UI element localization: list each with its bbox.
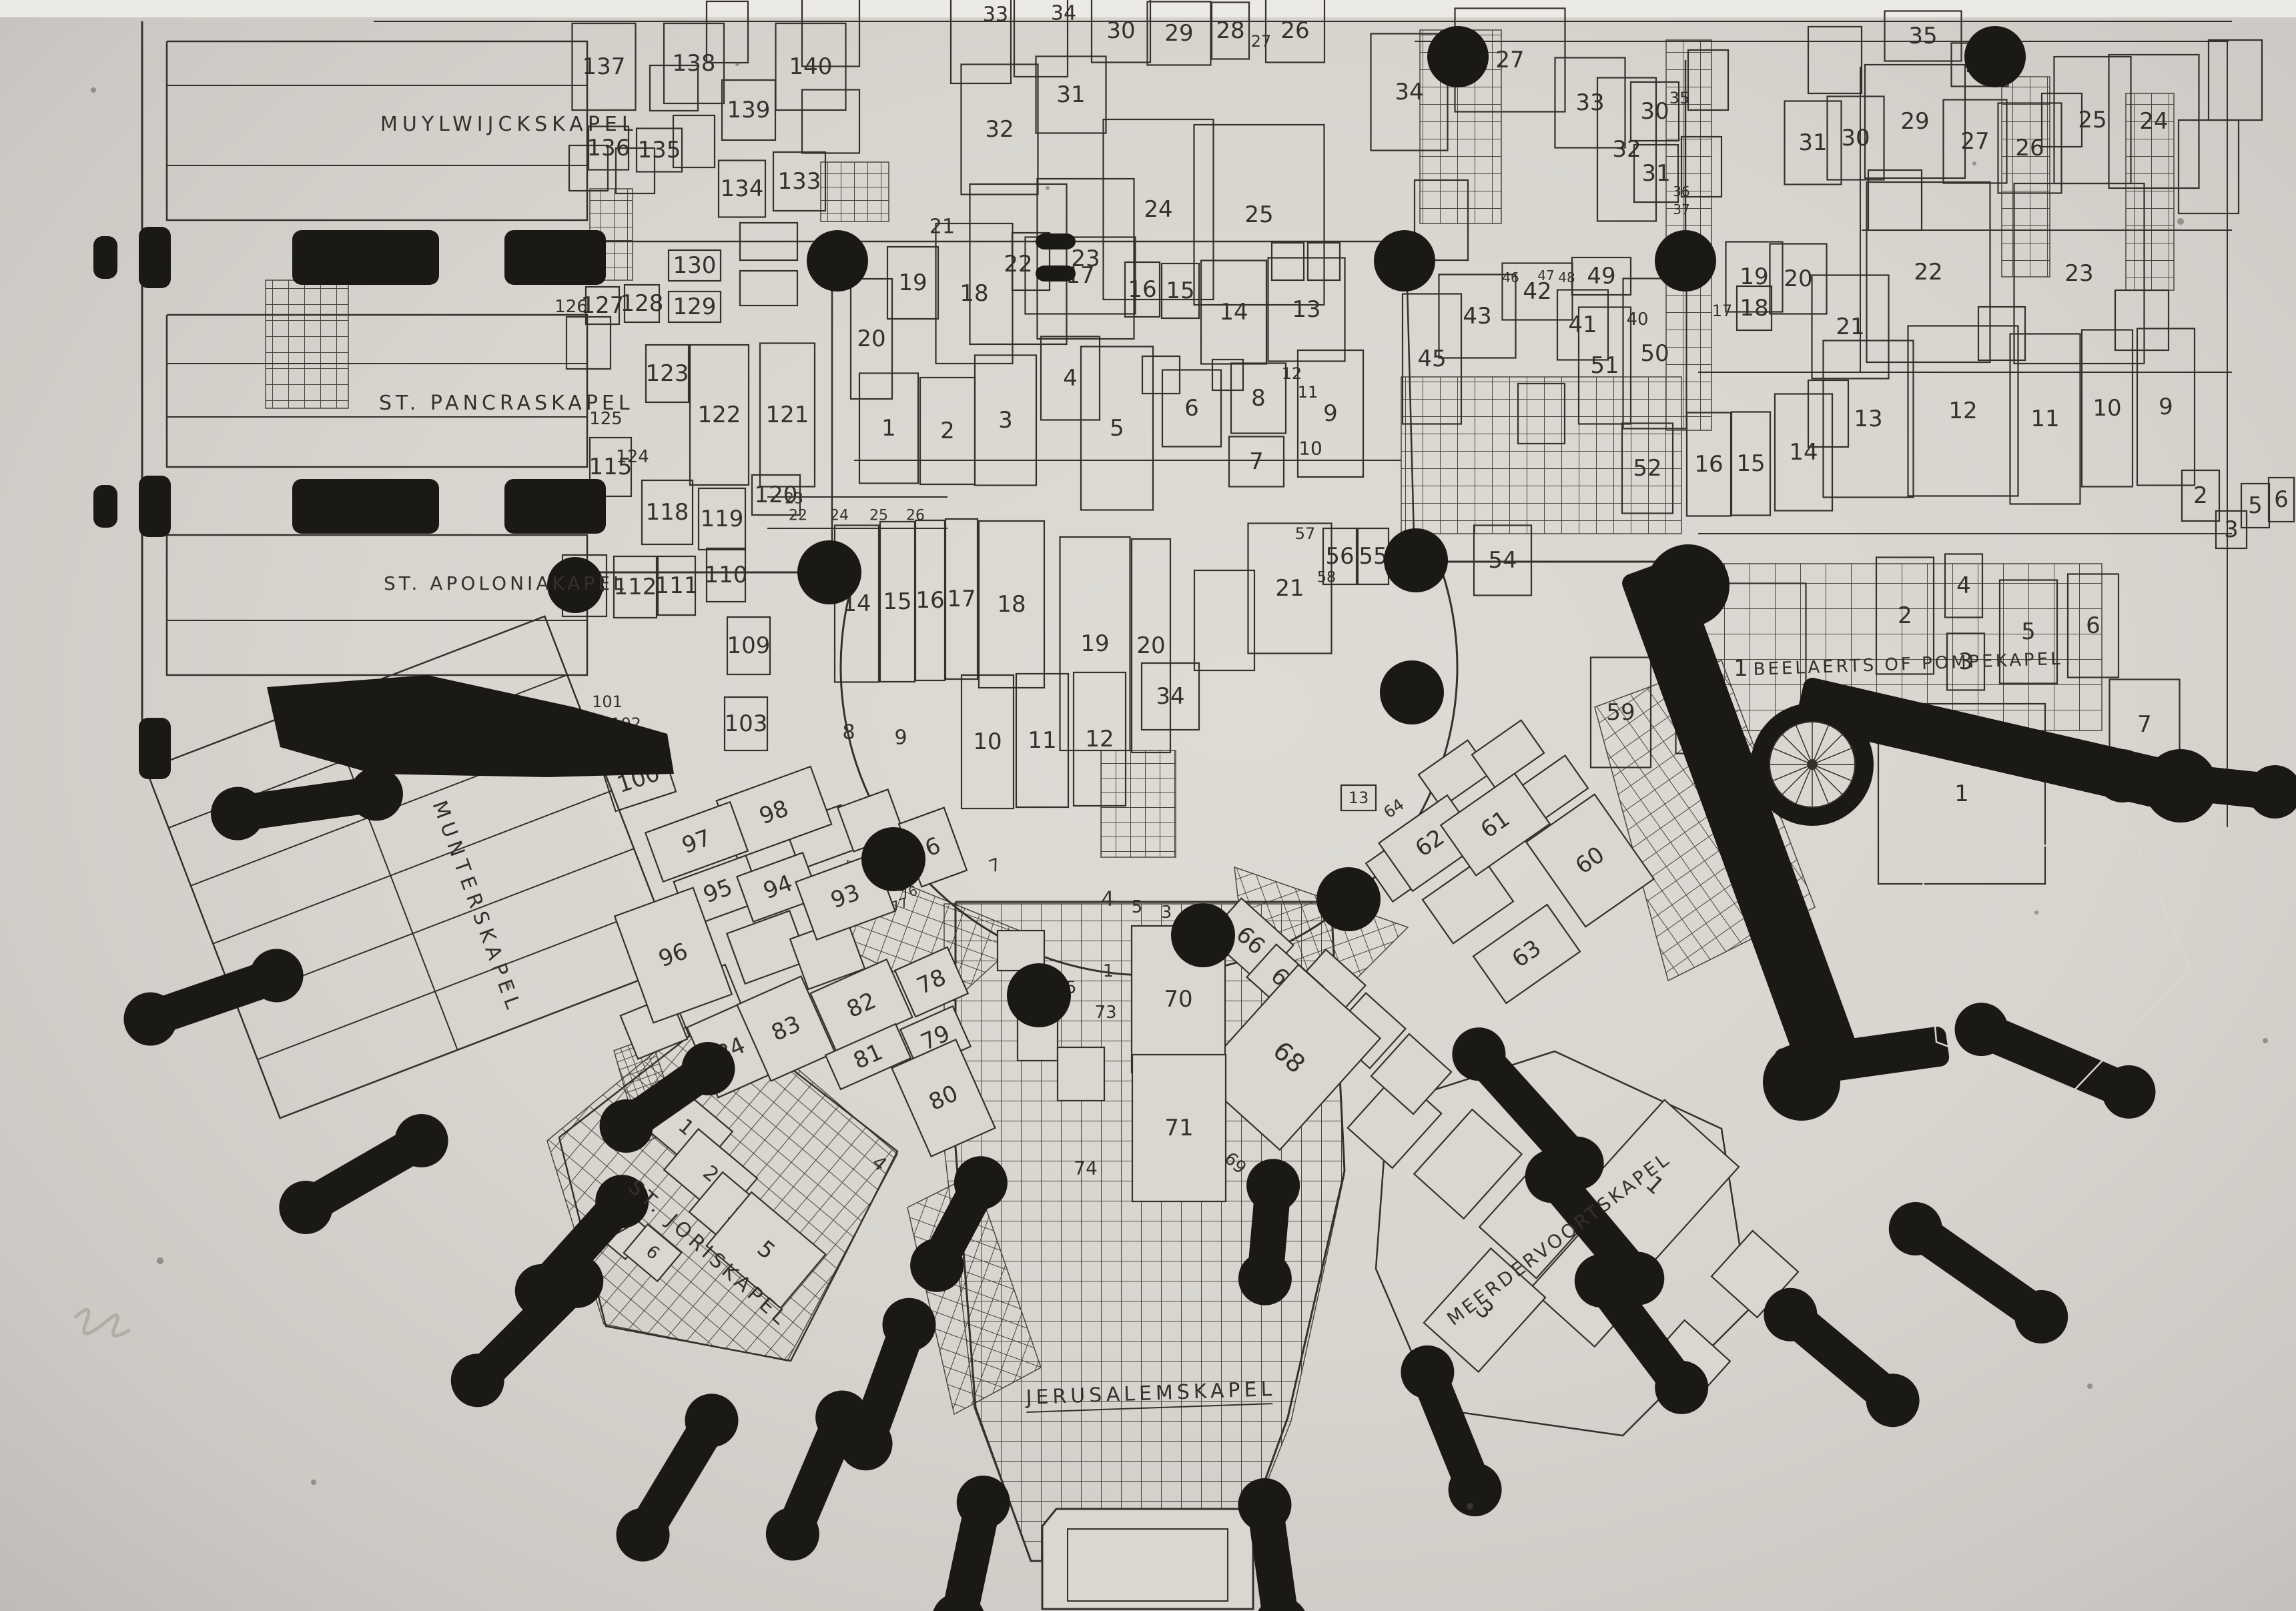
grave-plot-cell bbox=[2179, 120, 2239, 213]
wall-line bbox=[167, 315, 587, 467]
grave-plot: 46 bbox=[1502, 270, 1519, 286]
grave-plot: 133 bbox=[773, 152, 825, 211]
grave-plot: 3 bbox=[1161, 903, 1172, 923]
plot-number-label: 10 bbox=[2092, 395, 2121, 422]
grave-plot: 2 bbox=[920, 378, 975, 484]
grave-plot: 18 bbox=[979, 521, 1044, 688]
grave-plot: 27 bbox=[1944, 100, 2007, 183]
pier-bar bbox=[504, 479, 606, 534]
grave-plot-cell bbox=[1142, 356, 1180, 394]
dust-speck bbox=[2263, 1038, 2268, 1043]
grave-plot: 110 bbox=[705, 548, 748, 602]
plot-number-label: 5 bbox=[1110, 415, 1124, 442]
grave-plot: 47 bbox=[1537, 267, 1554, 284]
dust-speck bbox=[311, 1480, 316, 1485]
plot-number-label: 41 bbox=[1568, 312, 1597, 338]
spiral-staircase bbox=[1751, 703, 1874, 826]
grave-plot: 15 bbox=[1732, 412, 1770, 516]
grave-plot: 118 bbox=[642, 480, 693, 544]
plot-number-label: 21 bbox=[1836, 314, 1864, 340]
grave-plot: 122 bbox=[690, 345, 749, 485]
chapel-label-munterskapel: MUNTERSKAPEL bbox=[427, 798, 526, 1017]
grave-plot: 129 bbox=[669, 292, 721, 322]
plot-number-label: 3 bbox=[2224, 516, 2239, 543]
dust-speck bbox=[2177, 218, 2184, 225]
grave-plot: 101 bbox=[592, 692, 623, 711]
plot-number-label: 27 bbox=[1960, 128, 1989, 155]
plot-number-label: 2 bbox=[940, 418, 955, 444]
grave-plot: 21 bbox=[1248, 524, 1332, 654]
plot-number-label: 129 bbox=[673, 294, 717, 320]
plot-number-label: 27 bbox=[1495, 47, 1524, 73]
grave-plot: 13 bbox=[1268, 258, 1345, 362]
grave-plot-cell bbox=[1272, 243, 1304, 280]
buttress-pier bbox=[927, 1471, 1015, 1611]
grave-plot: 9 bbox=[2137, 329, 2195, 486]
plot-number-label: 59 bbox=[1606, 699, 1635, 726]
scanned-floorplan-photo: 1371381401391361351341331301291281271261… bbox=[0, 0, 2296, 1611]
grave-plot-cell bbox=[1194, 570, 1254, 670]
hatched-floor-area bbox=[266, 280, 348, 408]
plot-number-label: 121 bbox=[766, 402, 809, 428]
plot-number-label: 22 bbox=[1914, 259, 1942, 286]
plot-number-label: 10 bbox=[1298, 438, 1322, 460]
plot-number-label: 14 bbox=[1219, 299, 1248, 326]
grave-plot: 11 bbox=[2010, 334, 2080, 504]
pier-bar bbox=[93, 485, 117, 528]
grave-plot-cell bbox=[1058, 1047, 1104, 1101]
grave-plot: 1 bbox=[1103, 961, 1114, 981]
dust-speck bbox=[506, 983, 511, 989]
plot-number-label: 34 bbox=[1156, 683, 1184, 710]
grave-plot: 8 bbox=[1231, 364, 1286, 434]
grave-plot: 55 bbox=[1358, 528, 1389, 584]
grave-plot: 126 bbox=[554, 297, 588, 317]
plot-number-label: 6 bbox=[2274, 486, 2289, 513]
plot-number-label: 20 bbox=[1136, 632, 1165, 659]
dust-speck bbox=[2034, 911, 2038, 915]
plot-number-label: 1 bbox=[1954, 780, 1969, 807]
plot-number-label: 71 bbox=[1164, 1115, 1193, 1141]
plot-number-label: 13 bbox=[1349, 788, 1369, 807]
buttress-pier bbox=[1393, 1337, 1509, 1524]
grave-plot: 3 bbox=[975, 356, 1036, 486]
plot-number-label: 3 bbox=[1161, 903, 1172, 923]
plot-number-label: 11 bbox=[1298, 383, 1318, 402]
grave-plot: 18 bbox=[936, 223, 1013, 364]
plot-number-label: 123 bbox=[646, 360, 689, 387]
dust-speck bbox=[91, 87, 96, 93]
grave-plot: 30 bbox=[1828, 97, 1884, 180]
hatched-floor-area bbox=[2002, 77, 2050, 277]
plot-number-label: 47 bbox=[1537, 267, 1554, 284]
plot-number-label: 1 bbox=[1103, 961, 1114, 981]
plot-number-label: 56 bbox=[1325, 543, 1354, 570]
plot-number-label: 32 bbox=[985, 116, 1014, 143]
grave-plot: 24 bbox=[830, 508, 849, 524]
pier-bar bbox=[139, 227, 171, 288]
plot-number-label: 6 bbox=[2086, 612, 2100, 639]
grave-plot: 11 bbox=[1298, 383, 1318, 402]
plot-number-label: 7 bbox=[986, 855, 1004, 877]
plot-number-label: 111 bbox=[655, 572, 699, 599]
grave-plot: 9 bbox=[894, 726, 907, 750]
plot-number-label: 55 bbox=[1359, 543, 1387, 570]
wall-line bbox=[167, 535, 587, 675]
plot-number-label: 34 bbox=[1051, 2, 1076, 25]
plot-number-label: 12 bbox=[1282, 364, 1302, 383]
grave-plot: 12 bbox=[1282, 364, 1302, 383]
grave-plot: 18 bbox=[1737, 286, 1772, 330]
plot-number-label: 20 bbox=[857, 326, 885, 352]
plot-number-label: 24 bbox=[1144, 196, 1172, 223]
plot-number-label: 32 bbox=[1612, 136, 1641, 163]
plot-number-label: 23 bbox=[785, 491, 803, 508]
dust-speck bbox=[1046, 186, 1050, 190]
plot-number-label: 128 bbox=[621, 290, 664, 317]
plot-number-label: 27 bbox=[1251, 32, 1272, 51]
plot-number-label: 7 bbox=[1249, 448, 1264, 475]
plot-number-label: 30 bbox=[1106, 17, 1135, 44]
column-pillar bbox=[1316, 867, 1381, 931]
plot-number-label: 31 bbox=[1641, 160, 1670, 187]
plot-number-label: 9 bbox=[1323, 400, 1338, 427]
pier-mass bbox=[2144, 749, 2217, 823]
plot-number-label: 54 bbox=[1488, 547, 1517, 574]
grave-plot: 20 bbox=[851, 279, 892, 399]
grave-plot: 5 bbox=[1132, 897, 1143, 917]
dust-speck bbox=[157, 1257, 163, 1264]
plot-number-label: 26 bbox=[2015, 135, 2044, 161]
grave-plot: 22 bbox=[970, 184, 1067, 344]
plot-number-label: 43 bbox=[1463, 303, 1491, 330]
grave-plot: 137 bbox=[572, 23, 636, 110]
grave-plot: 3 bbox=[2216, 511, 2247, 548]
grave-plot: 20 bbox=[1132, 539, 1170, 752]
dust-speck bbox=[2087, 1384, 2092, 1389]
column-pillar bbox=[1374, 230, 1435, 292]
plot-number-label: 130 bbox=[673, 252, 717, 279]
grave-plot: 40 bbox=[1626, 310, 1648, 330]
plot-number-label: 28 bbox=[1216, 17, 1244, 44]
plot-number-label: 33 bbox=[983, 3, 1008, 27]
plot-number-label: 18 bbox=[1740, 295, 1768, 322]
plot-number-label: 20 bbox=[1784, 265, 1812, 292]
plot-number-label: 36 bbox=[1673, 183, 1689, 199]
plot-number-label: 17 bbox=[1712, 302, 1733, 320]
pencil-mark bbox=[73, 1301, 130, 1344]
plot-number-label: 16 bbox=[915, 587, 944, 614]
grave-plot: 111 bbox=[655, 556, 699, 615]
column-pillar bbox=[1171, 903, 1235, 967]
grave-plot: 121 bbox=[760, 344, 815, 487]
plot-number-label: 30 bbox=[1640, 98, 1669, 125]
plot-number-label: 115 bbox=[589, 454, 633, 480]
plot-number-label: 73 bbox=[1094, 1003, 1116, 1023]
grave-plot-cell bbox=[802, 90, 859, 153]
grave-plot: 25 bbox=[2054, 57, 2131, 183]
pier-bar bbox=[139, 476, 171, 537]
grave-plot: 57 bbox=[1295, 524, 1316, 543]
plot-number-label: 64 bbox=[1380, 795, 1407, 822]
buttress-pier bbox=[831, 1290, 943, 1478]
plot-number-label: 17 bbox=[947, 586, 976, 612]
grave-plot: 54 bbox=[1474, 526, 1531, 596]
plot-number-label: 133 bbox=[778, 168, 821, 195]
buttress-pier bbox=[1878, 1191, 2078, 1354]
plot-number-label: 50 bbox=[1640, 340, 1669, 367]
plot-number-label: 35 bbox=[1908, 23, 1937, 49]
pier-bar bbox=[292, 479, 439, 534]
plot-number-label: 5 bbox=[2021, 618, 2036, 645]
plot-number-label: 137 bbox=[583, 53, 626, 80]
plot-number-label: 33 bbox=[1575, 89, 1604, 116]
plot-number-label: 110 bbox=[705, 562, 748, 588]
buttress-pier bbox=[117, 942, 311, 1053]
plot-number-label: 45 bbox=[1417, 346, 1446, 372]
plot-number-label: 5 bbox=[2248, 492, 2263, 519]
chapel-entrance bbox=[1042, 1509, 1253, 1609]
grave-plot: 74 bbox=[1074, 1157, 1098, 1179]
grave-plot: 103 bbox=[725, 697, 768, 750]
grave-plot: 73 bbox=[1094, 1003, 1116, 1023]
buttress-pier bbox=[607, 1384, 749, 1571]
buttress-pier bbox=[208, 764, 406, 844]
grave-plot: 15 bbox=[880, 522, 915, 682]
plot-number-label: 2 bbox=[1898, 602, 1912, 629]
plot-number-label: 26 bbox=[1280, 17, 1309, 44]
column-pillar bbox=[1380, 660, 1444, 724]
grave-plot: 2 bbox=[2182, 470, 2219, 521]
grave-plot: 138 bbox=[664, 23, 724, 103]
grave-plot: 134 bbox=[719, 161, 765, 217]
grave-plot-cell bbox=[2115, 290, 2169, 350]
plot-number-label: 139 bbox=[727, 97, 771, 123]
grave-plot: 17 bbox=[945, 519, 978, 679]
plot-number-label: 57 bbox=[1295, 524, 1316, 543]
dust-speck bbox=[1467, 1503, 1473, 1510]
plot-number-label: 34 bbox=[1395, 79, 1423, 105]
grave-plot: 16 bbox=[915, 520, 945, 680]
plot-number-label: 8 bbox=[842, 721, 855, 744]
plot-number-label: 19 bbox=[1080, 630, 1109, 657]
column-pillar bbox=[1427, 26, 1489, 87]
pier-bar bbox=[504, 230, 606, 285]
plot-number-label: 24 bbox=[2139, 108, 2168, 135]
plot-number-label: 46 bbox=[1502, 270, 1519, 286]
buttress-pier bbox=[270, 1104, 458, 1243]
grave-plot: 12 bbox=[1908, 326, 2018, 496]
plot-number-label: 126 bbox=[554, 297, 588, 317]
pier-bar bbox=[139, 718, 171, 779]
plot-number-label: 109 bbox=[727, 632, 771, 659]
plot-number-label: 1 bbox=[881, 415, 896, 442]
plot-number-label: 21 bbox=[1275, 575, 1304, 602]
column-pillar bbox=[861, 827, 925, 891]
grave-plot: 36 bbox=[1673, 183, 1689, 199]
plot-number-label: 30 bbox=[1841, 125, 1870, 151]
plot-number-label: 1 bbox=[1734, 655, 1748, 682]
grave-plot: 17 bbox=[1712, 302, 1733, 320]
grave-plot: 123 bbox=[646, 345, 689, 402]
plot-number-label: 70 bbox=[1164, 986, 1192, 1013]
plot-number-label: 11 bbox=[2030, 406, 2059, 432]
grave-plot: 10 bbox=[1298, 438, 1322, 460]
plot-number-label: 35 bbox=[1669, 89, 1690, 107]
grave-plot: 10 bbox=[962, 675, 1014, 809]
grave-plot: 23 bbox=[785, 491, 803, 508]
grave-plot: 29 bbox=[1865, 65, 1965, 178]
plot-number-label: 29 bbox=[1900, 108, 1929, 135]
plot-number-label: 136 bbox=[587, 135, 631, 161]
grave-plot-cell bbox=[1808, 380, 1848, 447]
pier-mass bbox=[267, 675, 674, 777]
plot-number-label: 15 bbox=[1736, 450, 1765, 477]
buttress-pier bbox=[1946, 995, 2164, 1127]
grave-plot: 64 bbox=[1380, 795, 1407, 822]
plot-number-label: 12 bbox=[1948, 398, 1977, 424]
plot-number-label: 103 bbox=[725, 710, 768, 737]
plot-number-label: 21 bbox=[929, 215, 955, 239]
grave-plot: 24 bbox=[1104, 119, 1214, 300]
grave-plot: 119 bbox=[699, 488, 745, 550]
hatched-floor-area bbox=[1101, 750, 1176, 857]
grave-plot: 4 bbox=[1041, 337, 1100, 420]
grave-plot: 35 bbox=[1885, 11, 1962, 61]
pier-bar bbox=[1036, 233, 1076, 249]
grave-plot: 31 bbox=[1785, 101, 1842, 185]
column-pillar bbox=[1007, 963, 1071, 1027]
grave-plot: 71 bbox=[1132, 1055, 1226, 1201]
grave-plot: 21 bbox=[929, 215, 955, 239]
plot-number-label: 23 bbox=[2064, 260, 2093, 287]
grave-plot: 7 bbox=[1229, 437, 1284, 487]
floor-plan-svg: 1371381401391361351341331301291281271261… bbox=[0, 0, 2296, 1611]
column-pillar bbox=[1964, 26, 2026, 87]
plot-number-label: 58 bbox=[1317, 570, 1336, 586]
grave-plot: 43 bbox=[1439, 275, 1516, 358]
grave-plot: 130 bbox=[669, 250, 721, 281]
grave-plot: 16 bbox=[1125, 262, 1160, 317]
column-pillar bbox=[1384, 528, 1448, 592]
grave-plot: 135 bbox=[637, 129, 682, 172]
plot-number-label: 119 bbox=[701, 506, 744, 532]
plot-number-label: 31 bbox=[1798, 129, 1827, 156]
plot-number-label: 22 bbox=[1004, 251, 1032, 278]
plot-number-label: 5 bbox=[1132, 897, 1143, 917]
plot-number-label: 19 bbox=[898, 270, 927, 296]
column-pillar bbox=[807, 230, 868, 292]
grave-plot: 4 bbox=[1101, 888, 1114, 911]
dust-speck bbox=[735, 62, 739, 66]
grave-plot: 19 bbox=[887, 247, 938, 319]
grave-plot: 6 bbox=[2269, 478, 2294, 522]
grave-plot: 27 bbox=[1251, 32, 1272, 51]
plot-number-label: 15 bbox=[883, 588, 911, 615]
plot-number-label: 3 bbox=[998, 407, 1013, 434]
plot-number-label: 74 bbox=[1074, 1157, 1098, 1179]
grave-plot: 22 bbox=[1867, 182, 1990, 362]
grave-plot: 41 bbox=[1557, 290, 1608, 360]
plot-number-label: 138 bbox=[673, 50, 716, 77]
plot-number-label: 25 bbox=[2078, 107, 2107, 133]
plot-number-label: 8 bbox=[1251, 385, 1266, 412]
plot-number-label: 22 bbox=[789, 508, 807, 524]
grave-plot: 33 bbox=[983, 3, 1008, 27]
grave-plot: 14 bbox=[1201, 261, 1266, 364]
plot-number-label: 11 bbox=[1028, 727, 1056, 754]
grave-plot: 7 bbox=[986, 855, 1004, 877]
plot-number-label: 13 bbox=[1292, 296, 1320, 323]
plot-number-label: 140 bbox=[789, 53, 833, 80]
buttress-pier bbox=[1753, 1277, 1930, 1438]
plot-number-label: 23 bbox=[1071, 245, 1100, 272]
chapel-label-st-pancraskapel: ST. PANCRASKAPEL bbox=[379, 392, 634, 415]
grave-plot: 63 bbox=[1473, 905, 1580, 1003]
grave-plot: 109 bbox=[727, 617, 771, 674]
plot-number-label: 7 bbox=[2137, 711, 2152, 738]
plot-number-label: 10 bbox=[973, 728, 1002, 755]
plot-number-label: 29 bbox=[1164, 20, 1193, 47]
plot-number-label: 49 bbox=[1587, 263, 1615, 290]
hatched-floor-area bbox=[821, 162, 889, 221]
pier-mass bbox=[1647, 544, 1730, 627]
pier-bar bbox=[292, 230, 439, 285]
plot-number-label: 18 bbox=[960, 280, 988, 307]
column-pillar bbox=[797, 540, 861, 604]
plot-number-label: 2 bbox=[2193, 482, 2208, 509]
plot-number-label: 6 bbox=[1184, 395, 1199, 422]
plot-number-label: 9 bbox=[2159, 394, 2173, 420]
plot-number-label: 9 bbox=[894, 726, 907, 750]
plot-number-label: 40 bbox=[1626, 310, 1648, 330]
plot-number-label: 118 bbox=[646, 499, 689, 526]
plot-number-label: 31 bbox=[1056, 81, 1085, 108]
plot-number-label: 122 bbox=[698, 402, 741, 428]
plot-number-label: 101 bbox=[592, 692, 623, 711]
pier-mass bbox=[1763, 1043, 1840, 1121]
plot-number-label: 51 bbox=[1590, 352, 1619, 379]
grave-plot: 31 bbox=[1036, 57, 1106, 133]
grave-plot: 20 bbox=[1770, 244, 1827, 314]
plot-number-label: 4 bbox=[1101, 888, 1114, 911]
plot-number-label: 37 bbox=[1673, 201, 1689, 217]
grave-plot: 13 bbox=[1824, 341, 1914, 498]
pier-bar bbox=[1036, 265, 1076, 282]
pier-bar bbox=[93, 236, 117, 279]
grave-plot: 128 bbox=[621, 285, 664, 322]
plot-number-label: 24 bbox=[830, 508, 849, 524]
plot-number-label: 18 bbox=[997, 591, 1026, 618]
dust-speck bbox=[1972, 161, 1976, 165]
grave-plot: 35 bbox=[1669, 89, 1690, 107]
grave-plot: 22 bbox=[789, 508, 807, 524]
plot-number-label: 4 bbox=[1063, 365, 1078, 392]
plot-number-label: 4 bbox=[1956, 572, 1971, 599]
plot-number-label: 13 bbox=[1854, 406, 1882, 432]
chapel-label-muylwijckskapel: MUYLWIJCKSKAPEL bbox=[380, 113, 638, 136]
plot-number-label: 52 bbox=[1633, 455, 1661, 482]
plot-number-label: 134 bbox=[721, 175, 764, 202]
grave-plot-cell bbox=[2209, 40, 2262, 120]
grave-plot: 19 bbox=[1060, 537, 1130, 750]
grave-plot: 5 bbox=[2241, 484, 2269, 528]
grave-plot: 8 bbox=[842, 721, 855, 744]
grave-plot-cell bbox=[1808, 27, 1862, 93]
grave-plot: 34 bbox=[1051, 2, 1076, 25]
plot-number-label: 135 bbox=[638, 137, 681, 163]
grave-plot-cell bbox=[740, 271, 797, 306]
